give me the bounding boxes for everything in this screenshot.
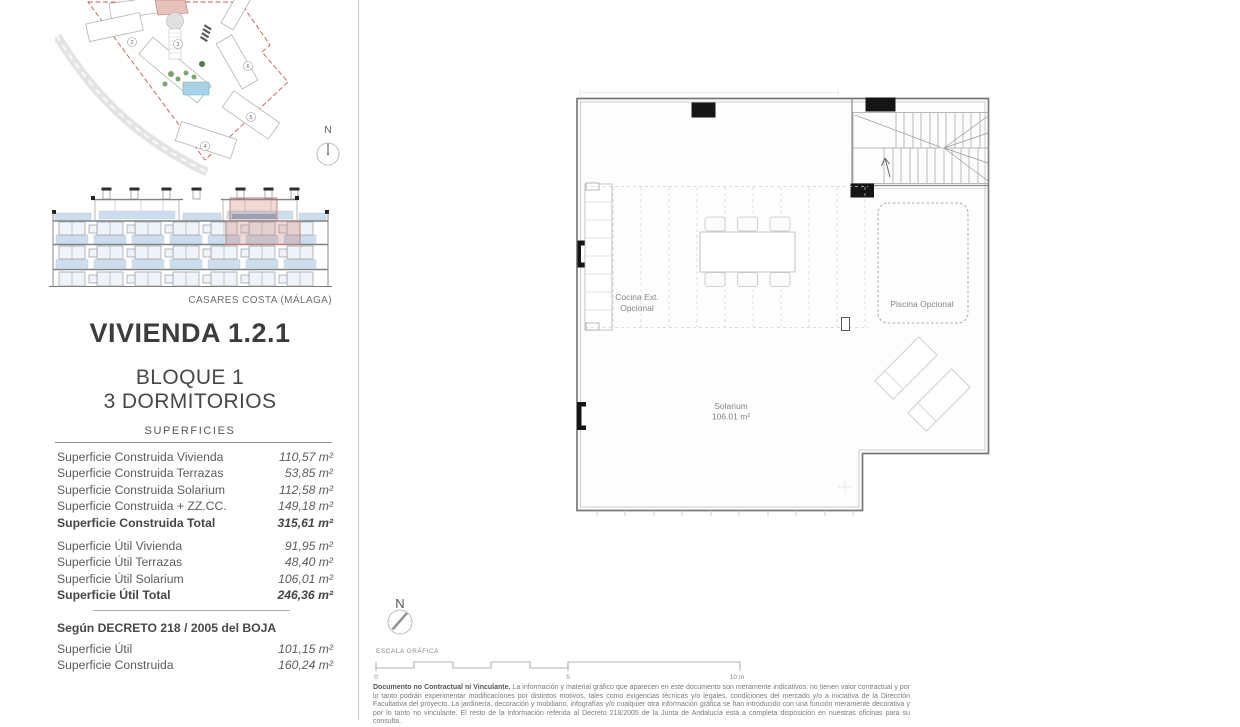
- solarium-label: Solarium: [714, 401, 748, 411]
- badge-4: 4: [203, 144, 206, 150]
- table-row: Superficie Construida Solarium112,58 m²: [57, 482, 333, 498]
- scale-tick-10: 10 m: [730, 674, 744, 681]
- north-compass-icon: N: [317, 125, 339, 165]
- floor-plan: Cocina Ext. Opcional Piscina Opcional So…: [560, 85, 1000, 530]
- location-label: CASARES COSTA (MÁLAGA): [40, 295, 332, 306]
- table-row-total: Superficie Útil Total246,36 m²: [57, 587, 333, 603]
- badge-6: 6: [246, 64, 249, 70]
- scale-tick-5: 5: [566, 674, 570, 681]
- table-row-total: Superficie Construida Total315,61 m²: [57, 515, 333, 531]
- table-divider: [93, 610, 290, 611]
- site-pool: [183, 82, 209, 95]
- table-row: Superficie Útil Terrazas48,40 m²: [57, 554, 333, 570]
- penthouses: [52, 196, 329, 221]
- bedrooms-subtitle: 3 DORMITORIOS: [30, 390, 350, 414]
- chimneys: [102, 188, 300, 200]
- pergola-post: [842, 318, 850, 331]
- table-row: Superficie Construida Terrazas53,85 m²: [57, 465, 333, 481]
- badge-5: 5: [249, 115, 252, 121]
- surfaces-rule: [55, 442, 332, 443]
- page-title: VIVIENDA 1.2.1: [30, 318, 350, 349]
- north-compass-icon: N: [388, 596, 412, 634]
- table-row: Superficie Útil101,15 m²: [57, 641, 333, 657]
- scale-tick-0: 0: [374, 674, 378, 681]
- site-plan: 2 3 4 5 6 N: [55, 0, 345, 178]
- scale-label: ESCALA GRÁFICA: [376, 646, 439, 655]
- scale-graphic: N ESCALA GRÁFICA 0 5 10 m: [365, 583, 765, 685]
- dining-table: [700, 217, 795, 287]
- exterior-kitchen: [585, 183, 612, 330]
- table-row: Superficie Construida160,24 m²: [57, 657, 333, 673]
- badge-2: 2: [130, 40, 133, 46]
- badge-3: 3: [176, 42, 179, 48]
- table-row: Superficie Útil Vivienda91,95 m²: [57, 538, 333, 554]
- north-label: N: [324, 125, 331, 136]
- panel-divider: [358, 0, 359, 720]
- cocina-label-2: Opcional: [620, 303, 654, 313]
- disclaimer: Documento no Contractual ni Vinculante. …: [373, 684, 910, 727]
- scale-bar: [376, 662, 740, 671]
- building-elevation: [45, 186, 335, 290]
- surfaces-table: Superficie Construida Vivienda110,57 m² …: [57, 449, 333, 673]
- piscina-label: Piscina Opcional: [890, 299, 953, 309]
- disclaimer-lead: Documento no Contractual ni Vinculante.: [373, 684, 510, 691]
- table-row: Superficie Útil Solarium106,01 m²: [57, 571, 333, 587]
- solarium-area-label: 106.01 m²: [712, 412, 750, 422]
- cocina-label: Cocina Ext.: [615, 292, 658, 302]
- north-label: N: [395, 596, 404, 611]
- table-row: Superficie Construida Vivienda110,57 m²: [57, 449, 333, 465]
- block-subtitle: BLOQUE 1: [30, 366, 350, 390]
- road: [57, 36, 207, 172]
- surfaces-header: SUPERFICIES: [30, 425, 350, 437]
- decree-heading: Según DECRETO 218 / 2005 del BOJA: [57, 619, 333, 637]
- table-row: Superficie Construida + ZZ.CC.149,18 m²: [57, 498, 333, 514]
- roundabout: [167, 13, 184, 30]
- highlighted-building: [155, 0, 188, 15]
